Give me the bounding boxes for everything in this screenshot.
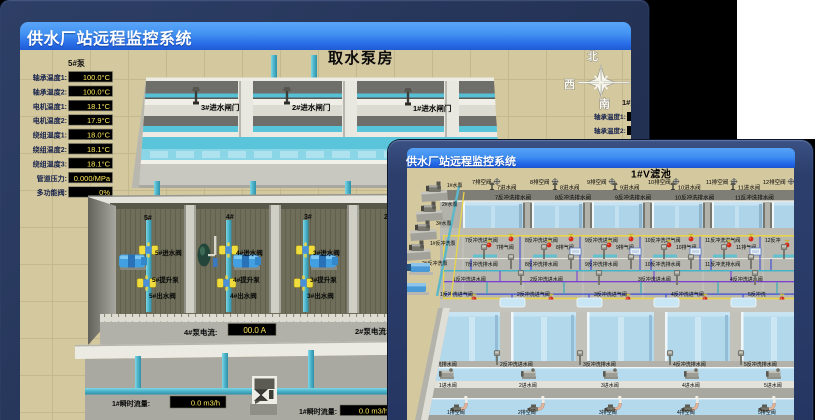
svg-text:3反冲洗进水阀: 3反冲洗进水阀 xyxy=(638,276,671,283)
svg-text:2排空阀: 2排空阀 xyxy=(518,409,536,416)
svg-text:3#: 3# xyxy=(304,214,312,221)
svg-text:电机温度2:: 电机温度2: xyxy=(33,116,67,125)
svg-text:18.1°C: 18.1°C xyxy=(87,145,111,154)
svg-text:18.1°C: 18.1°C xyxy=(87,159,111,168)
svg-text:北: 北 xyxy=(587,50,598,63)
svg-text:绕组温度2:: 绕组温度2: xyxy=(33,145,67,154)
svg-text:100.0°C: 100.0°C xyxy=(83,87,111,96)
svg-text:轴承温度1:: 轴承温度1: xyxy=(33,73,67,82)
svg-text:绕组温度3:: 绕组温度3: xyxy=(33,159,67,168)
svg-text:10反冲洗排水阀: 10反冲洗排水阀 xyxy=(675,194,714,202)
svg-text:17.9°C: 17.9°C xyxy=(87,116,111,125)
svg-text:轴承温度1:: 轴承温度1: xyxy=(594,112,626,121)
svg-text:5#提升泵: 5#提升泵 xyxy=(152,275,179,284)
svg-text:3进水阀: 3进水阀 xyxy=(601,382,619,389)
svg-text:5#进水阀: 5#进水阀 xyxy=(155,248,182,257)
svg-text:3#提升泵: 3#提升泵 xyxy=(310,275,337,284)
svg-text:3反冲洗进气阀: 3反冲洗进气阀 xyxy=(594,291,627,298)
svg-text:11反冲洗排水阀: 11反冲洗排水阀 xyxy=(705,261,740,268)
svg-text:1#进水闸门: 1#进水闸门 xyxy=(413,103,451,113)
svg-text:3#进水闸门: 3#进水闸门 xyxy=(201,102,239,112)
svg-text:8排空阀: 8排空阀 xyxy=(530,178,550,186)
svg-text:轴承温度2:: 轴承温度2: xyxy=(33,87,67,96)
svg-text:0.0 m3/h: 0.0 m3/h xyxy=(191,399,220,408)
svg-text:3#水泵: 3#水泵 xyxy=(436,220,452,227)
svg-text:4反冲洗进水阀: 4反冲洗进水阀 xyxy=(730,276,763,283)
svg-text:1#瞬时流量:: 1#瞬时流量: xyxy=(299,407,337,416)
svg-text:2反冲洗进水阀: 2反冲洗进水阀 xyxy=(530,276,563,283)
svg-text:4#进水阀: 4#进水阀 xyxy=(236,248,263,257)
svg-text:1反冲洗进气阀: 1反冲洗进气阀 xyxy=(440,291,473,298)
svg-text:1#V滤池: 1#V滤池 xyxy=(631,168,671,181)
svg-text:0.0 m3/h: 0.0 m3/h xyxy=(359,407,388,416)
svg-text:12反冲: 12反冲 xyxy=(765,237,781,244)
svg-text:西: 西 xyxy=(564,78,575,91)
svg-text:多功能阀:: 多功能阀: xyxy=(37,188,67,197)
svg-text:7排气阀: 7排气阀 xyxy=(496,244,514,251)
svg-text:管道压力:: 管道压力: xyxy=(37,174,67,183)
svg-text:1进水阀: 1进水阀 xyxy=(439,382,457,389)
svg-text:1#瞬时流量:: 1#瞬时流量: xyxy=(112,399,150,408)
svg-text:4#泵电流:: 4#泵电流: xyxy=(184,327,217,337)
svg-text:5#泵: 5#泵 xyxy=(68,59,85,68)
svg-text:18.0°C: 18.0°C xyxy=(87,131,111,140)
svg-text:3反冲洗排水阀: 3反冲洗排水阀 xyxy=(583,361,616,368)
svg-text:3排空阀: 3排空阀 xyxy=(599,409,617,416)
svg-text:10反冲洗进气阀: 10反冲洗进气阀 xyxy=(645,237,681,244)
svg-text:2反冲洗进水阀: 2反冲洗进水阀 xyxy=(500,361,533,368)
svg-text:2反冲洗进气阀: 2反冲洗进气阀 xyxy=(517,291,550,298)
svg-text:5排空阀: 5排空阀 xyxy=(758,409,776,416)
svg-text:10反冲洗排水阀: 10反冲洗排水阀 xyxy=(645,261,681,268)
svg-text:9反冲洗排水阀: 9反冲洗排水阀 xyxy=(585,261,618,268)
svg-text:8反冲洗进气阀: 8反冲洗进气阀 xyxy=(525,237,558,244)
svg-text:7反冲洗排水阀: 7反冲洗排水阀 xyxy=(465,261,498,268)
svg-text:南: 南 xyxy=(599,97,610,111)
svg-text:2进水阀: 2进水阀 xyxy=(519,382,537,389)
svg-text:4排空阀: 4排空阀 xyxy=(677,409,695,416)
svg-text:1排空阀: 1排空阀 xyxy=(447,409,465,416)
svg-text:1#反冲洗泵: 1#反冲洗泵 xyxy=(430,240,456,247)
svg-text:3#进水阀: 3#进水阀 xyxy=(313,248,340,257)
svg-text:9反冲洗进气阀: 9反冲洗进气阀 xyxy=(585,237,618,244)
svg-text:9反冲洗排水阀: 9反冲洗排水阀 xyxy=(615,194,651,202)
svg-text:12排空阀: 12排空阀 xyxy=(763,178,786,186)
svg-text:4#提升泵: 4#提升泵 xyxy=(233,275,260,284)
svg-text:11反冲洗进气阀: 11反冲洗进气阀 xyxy=(705,237,740,244)
svg-text:00.0 A: 00.0 A xyxy=(243,326,266,335)
svg-text:7反冲洗排水阀: 7反冲洗排水阀 xyxy=(495,194,531,202)
svg-text:5反冲洗: 5反冲洗 xyxy=(748,291,766,298)
svg-text:5进水阀: 5进水阀 xyxy=(764,382,782,389)
svg-text:11排空阀: 11排空阀 xyxy=(706,178,728,186)
svg-text:3#出水阀: 3#出水阀 xyxy=(307,291,334,300)
svg-text:1#泵: 1#泵 xyxy=(622,98,631,107)
svg-text:1反冲洗进水阀: 1反冲洗进水阀 xyxy=(453,276,486,283)
svg-text:5#出水阀: 5#出水阀 xyxy=(149,291,176,300)
svg-text:7反冲洗进气阀: 7反冲洗进气阀 xyxy=(465,237,498,244)
svg-text:11反冲洗排水阀: 11反冲洗排水阀 xyxy=(735,194,774,202)
svg-text:18.1°C: 18.1°C xyxy=(87,102,111,111)
svg-text:1#水泵: 1#水泵 xyxy=(447,182,463,189)
svg-text:7排空阀: 7排空阀 xyxy=(472,178,492,186)
svg-text:2#进水闸门: 2#进水闸门 xyxy=(292,102,330,112)
svg-text:5反冲洗排水阀: 5反冲洗排水阀 xyxy=(744,361,777,368)
svg-text:4进水阀: 4进水阀 xyxy=(682,382,700,389)
svg-text:2#水泵: 2#水泵 xyxy=(442,201,458,208)
svg-text:9排空阀: 9排空阀 xyxy=(587,178,607,186)
svg-text:电机温度1:: 电机温度1: xyxy=(33,102,67,111)
svg-text:绕组温度1:: 绕组温度1: xyxy=(33,131,67,140)
svg-text:0.000/MPa: 0.000/MPa xyxy=(74,174,111,183)
svg-text:2#泵电流:: 2#泵电流: xyxy=(355,326,388,336)
svg-text:取水泵房: 取水泵房 xyxy=(328,50,394,67)
svg-text:10排空阀: 10排空阀 xyxy=(648,178,671,186)
svg-text:100.0°C: 100.0°C xyxy=(83,73,111,82)
svg-text:4#: 4# xyxy=(226,214,234,221)
svg-text:8反冲洗排水阀: 8反冲洗排水阀 xyxy=(525,261,558,268)
svg-text:4反冲洗进气阀: 4反冲洗进气阀 xyxy=(671,291,704,298)
svg-text:8反冲洗排水阀: 8反冲洗排水阀 xyxy=(555,194,591,202)
svg-text:轴承温度2:: 轴承温度2: xyxy=(594,126,626,135)
svg-text:4#出水阀: 4#出水阀 xyxy=(230,291,257,300)
svg-text:4反冲洗排水阀: 4反冲洗排水阀 xyxy=(673,361,706,368)
